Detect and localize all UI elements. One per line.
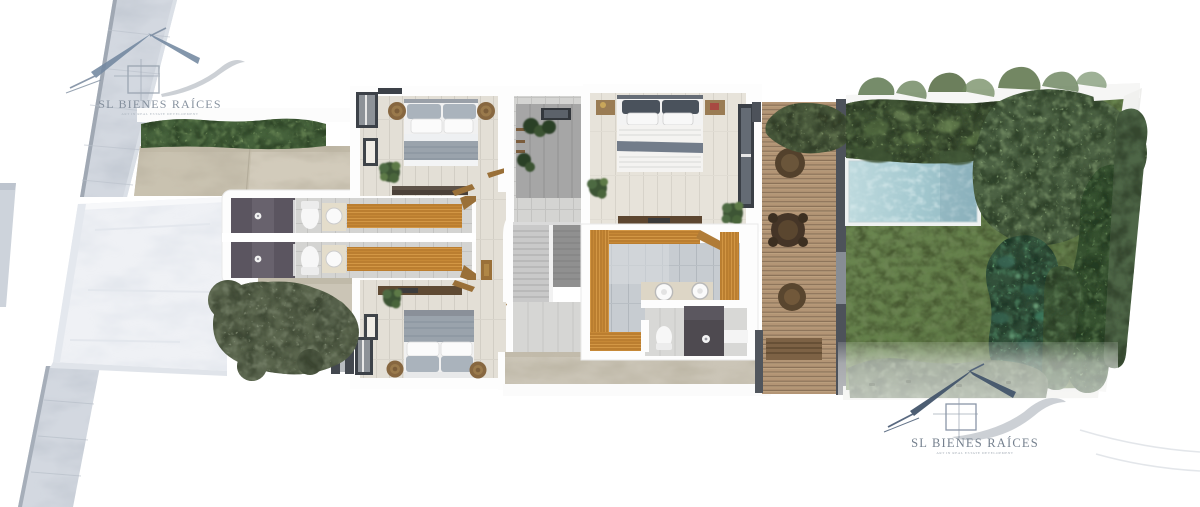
svg-text:SL BIENES RAÍCES: SL BIENES RAÍCES: [98, 97, 221, 111]
svg-text:ART IN REAL ESTATE DEVELOPMENT: ART IN REAL ESTATE DEVELOPMENT: [936, 451, 1014, 455]
svg-text:ART IN REAL ESTATE DEVELOPMENT: ART IN REAL ESTATE DEVELOPMENT: [121, 112, 199, 116]
svg-text:SL BIENES RAÍCES: SL BIENES RAÍCES: [911, 436, 1039, 450]
